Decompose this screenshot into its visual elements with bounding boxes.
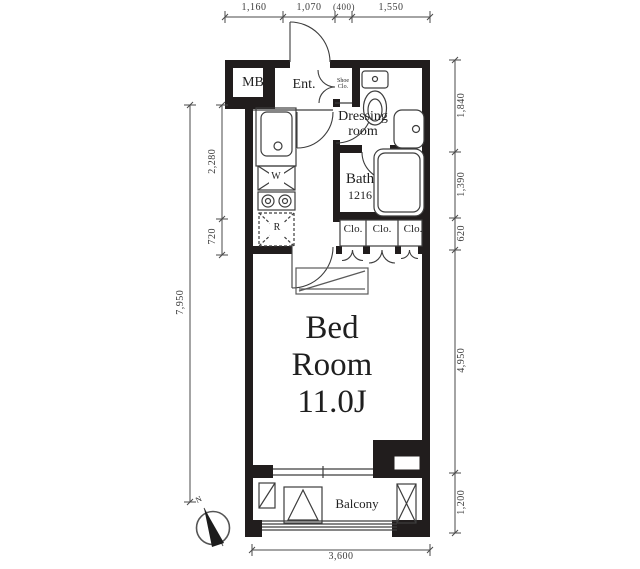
bedroom-door-arc (292, 244, 333, 288)
dim-bottom: 3,600 (321, 552, 361, 563)
dim-right-5: 1,200 (457, 480, 468, 524)
dim-top-3: (400) (324, 3, 364, 12)
room-label-balcony: Balcony (317, 497, 397, 511)
column-notch (394, 456, 420, 470)
dim-right-1: 1,840 (457, 83, 468, 127)
bedroom-size: 11.0J (297, 384, 366, 420)
wall-closet-stub-4 (418, 246, 426, 254)
balcony-partition-icon (259, 483, 275, 508)
dressing-line2: room (348, 124, 378, 139)
washer-letter: W (268, 172, 284, 183)
wall-top-right (330, 60, 430, 68)
room-label-ent: Ent. (284, 78, 324, 93)
closet-bifold-doors (342, 250, 418, 263)
kitchen-sink-icon (256, 108, 296, 166)
bedroom-line2: Room (292, 347, 373, 383)
bedroom-counter (296, 268, 368, 294)
dim-right-2: 1,390 (457, 162, 468, 206)
wall-kitchen-bottom (253, 246, 292, 254)
dim-right-4: 4,950 (457, 338, 468, 382)
floorplan-canvas: 1,160 1,070 (400) 1,550 7,950 2,280 720 … (0, 0, 640, 569)
compass-icon (197, 508, 230, 547)
wall-dressing-bath-left (333, 145, 362, 153)
dim-top-1: 1,160 (234, 3, 274, 14)
dim-top-4: 1,550 (371, 3, 411, 14)
stove-icon (258, 192, 295, 210)
dim-left-inner-2: 720 (208, 214, 219, 258)
room-label-clo-3: Clo. (400, 224, 426, 236)
wall-balcony-bottom-left (245, 520, 262, 537)
dim-left-outer: 7,950 (176, 280, 187, 324)
dim-left-inner-1: 2,280 (208, 139, 219, 183)
wall-top-left (225, 60, 290, 68)
room-label-bedroom: BedRoom11.0J (252, 310, 412, 421)
room-label-clo-1: Clo. (340, 224, 366, 236)
dim-right-3: 620 (457, 211, 468, 255)
room-label-mb: MB (238, 76, 268, 91)
entry-door-arc (290, 22, 330, 62)
shoe-line2: Clo. (338, 84, 348, 90)
room-label-clo-2: Clo. (369, 224, 395, 236)
wall-bedroom-bottom-left (245, 465, 273, 478)
room-label-bath-size: 1216 (340, 189, 380, 202)
wall-closet-stub-1 (336, 246, 342, 254)
wall-closet-stub-3 (395, 246, 401, 254)
bedroom-line1: Bed (305, 310, 358, 346)
equipment-box-icon (397, 484, 416, 523)
room-label-dressing: Dressingroom (323, 110, 403, 139)
wall-closet-stub-2 (363, 246, 370, 254)
dressing-line1: Dressing (338, 109, 388, 124)
room-label-bath: Bath (338, 172, 382, 188)
dim-top-2: 1,070 (289, 3, 329, 14)
fridge-letter: R (269, 223, 285, 234)
wall-shoe-closet-right (352, 60, 360, 107)
room-label-shoe-closet: ShoeClo. (334, 78, 352, 90)
